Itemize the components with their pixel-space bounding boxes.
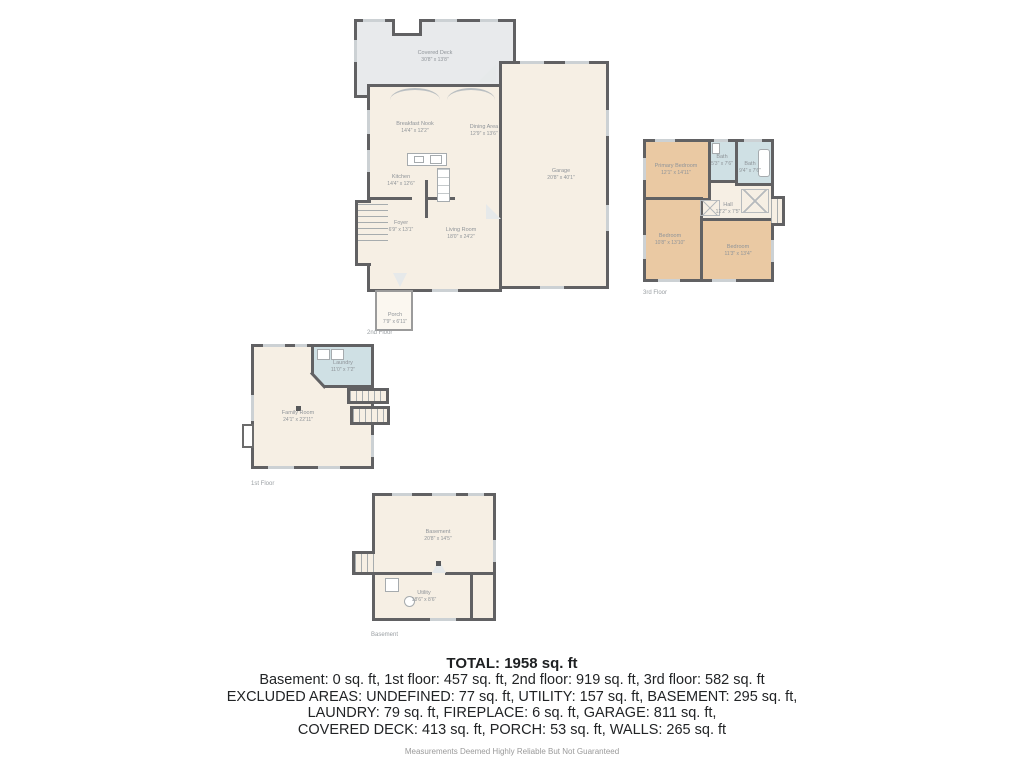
total-area-text: TOTAL: 1958 sq. ft <box>0 655 1024 672</box>
room-label-covered-deck: Covered Deck 30'8" x 13'8" <box>418 50 453 64</box>
stairs-down <box>350 406 390 425</box>
dryer <box>331 349 344 360</box>
window <box>540 286 564 289</box>
floor-areas-text: Basement: 0 sq. ft, 1st floor: 457 sq. f… <box>0 672 1024 689</box>
floor-caption-1st: 1st Floor <box>251 481 274 487</box>
room-label-primary-bedroom: Primary Bedroom 12'1" x 14'11" <box>655 163 698 177</box>
window <box>371 435 374 457</box>
kitchen-sink <box>414 156 424 163</box>
deck-notch <box>392 19 422 36</box>
stairs-up <box>347 388 389 404</box>
window <box>367 110 370 134</box>
stairs-3rd-floor <box>771 196 785 226</box>
kitchen-cabinets <box>437 168 450 202</box>
floor-caption-3rd: 3rd Floor <box>643 290 667 296</box>
furnace <box>385 578 399 592</box>
window <box>392 493 412 496</box>
window <box>658 279 680 282</box>
window <box>363 19 385 22</box>
toilet <box>712 143 720 154</box>
room-label-garage: Garage 20'8" x 40'1" <box>547 168 574 182</box>
window <box>268 466 294 469</box>
window <box>430 618 456 621</box>
area-summary: TOTAL: 1958 sq. ft Basement: 0 sq. ft, 1… <box>0 655 1024 756</box>
room-label-utility: Utility 18'6" x 8'6" <box>412 590 437 604</box>
window <box>643 235 646 259</box>
excluded-areas-text-3: COVERED DECK: 413 sq. ft, PORCH: 53 sq. … <box>0 722 1024 739</box>
floorplan-basement: Basement 20'8" x 14'5" Utility 18'6" x 8… <box>0 0 1024 768</box>
room-label-hall: Hall 12'2" x 7'5" <box>716 202 741 216</box>
window <box>354 40 357 62</box>
window <box>263 344 285 347</box>
room-label-family-room: Family Room 24'1" x 22'11" <box>282 410 314 424</box>
room-label-laundry: Laundry 11'0" x 7'2" <box>331 360 355 374</box>
interior-wall <box>372 572 432 575</box>
kitchen-stove <box>430 155 442 164</box>
room-label-basement: Basement 20'8" x 14'5" <box>424 529 451 543</box>
closet-x <box>741 189 769 213</box>
stairs-basement <box>352 551 375 575</box>
window <box>712 279 736 282</box>
window <box>318 466 340 469</box>
window <box>520 61 544 64</box>
window <box>367 150 370 172</box>
window <box>432 289 458 292</box>
room-label-breakfast-nook: Breakfast Nook 14'4" x 12'2" <box>396 121 434 135</box>
room-label-foyer: Foyer 6'9" x 13'1" <box>389 220 414 234</box>
window <box>432 493 456 496</box>
stairs-foyer <box>358 204 388 244</box>
window <box>565 61 589 64</box>
support-post <box>436 561 441 566</box>
window <box>714 139 728 142</box>
room-label-living-room: Living Room 18'0" x 24'2" <box>446 227 477 241</box>
room-label-kitchen: Kitchen 14'4" x 12'6" <box>387 174 414 188</box>
washer <box>317 349 330 360</box>
window <box>771 240 774 262</box>
window <box>435 19 457 22</box>
excluded-areas-text-2: LAUNDRY: 79 sq. ft, FIREPLACE: 6 sq. ft,… <box>0 705 1024 722</box>
room-label-bath-small: Bath 5'3" x 7'6" <box>711 154 733 168</box>
room-label-dining-area: Dining Area 12'9" x 13'6" <box>470 124 498 138</box>
room-label-bedroom-left: Bedroom 10'8" x 13'10" <box>655 233 685 247</box>
fireplace <box>242 424 254 448</box>
interior-wall <box>367 197 412 200</box>
room-label-bath-large: Bath 9'4" x 7'6" <box>739 161 761 175</box>
window <box>643 158 646 180</box>
window <box>468 493 484 496</box>
interior-wall <box>470 575 473 621</box>
window <box>744 139 762 142</box>
window <box>606 205 609 231</box>
room-label-bedroom-right: Bedroom 11'3" x 13'4" <box>724 244 751 258</box>
disclaimer-text: Measurements Deemed Highly Reliable But … <box>0 747 1024 756</box>
window <box>606 110 609 136</box>
window <box>251 395 254 421</box>
window <box>493 540 496 562</box>
room-label-porch: Porch 7'9" x 6'11" <box>383 312 407 326</box>
floor-caption-2nd: 2nd Floor <box>367 330 392 336</box>
window <box>480 19 498 22</box>
window <box>655 139 675 142</box>
floor-caption-basement: Basement <box>371 632 398 638</box>
excluded-areas-text-1: EXCLUDED AREAS: UNDEFINED: 77 sq. ft, UT… <box>0 689 1024 706</box>
window <box>295 344 307 347</box>
